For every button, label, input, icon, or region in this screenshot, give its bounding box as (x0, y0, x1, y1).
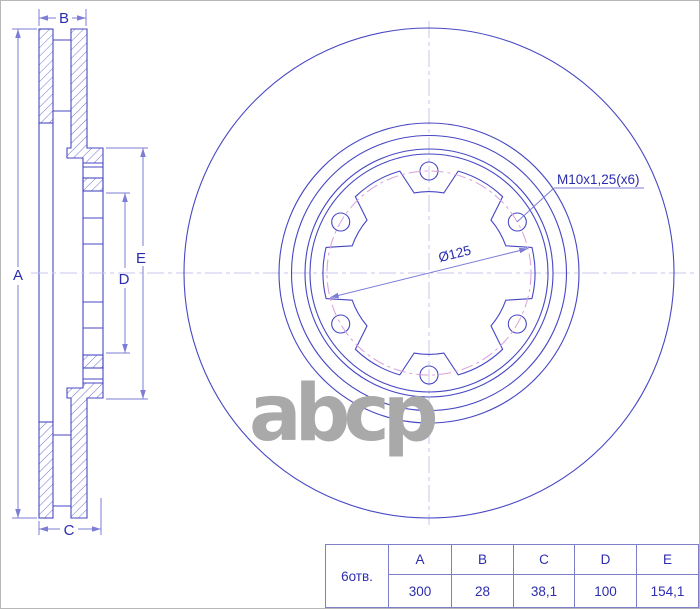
dim-label-b: B (59, 10, 69, 27)
dim-label-e: E (136, 250, 146, 267)
bolt-boss-section-bottom (83, 355, 103, 368)
table-value-e: 154,1 (636, 575, 698, 607)
friction-plate-inboard-top (67, 29, 103, 163)
table-value-b: 28 (451, 575, 513, 607)
bolt-circle-label-group: Ø125 (437, 243, 473, 265)
table-value-a: 300 (388, 575, 451, 607)
bolt-circle-diameter-label: Ø125 (437, 243, 473, 265)
dimension-table: 6отв. A B C D E 300 28 38,1 100 154,1 (325, 544, 699, 608)
table-header-c: C (513, 545, 574, 575)
brake-disc-drawing: A B C D E Ø125 M10x1,25(x6) (1, 1, 699, 608)
watermark-logo: abcp (249, 375, 432, 453)
dim-label-c: C (64, 522, 75, 539)
bolt-boss-section-top (83, 178, 103, 191)
dim-label-d: D (119, 271, 130, 288)
friction-plate-inboard-bottom (67, 383, 103, 518)
friction-plate-outboard-top (39, 29, 53, 123)
dim-label-a: A (13, 267, 23, 284)
table-header-e: E (636, 545, 698, 575)
bolt-hole (332, 315, 350, 333)
thread-callout-label: M10x1,25(x6) (557, 172, 640, 187)
thread-callout-leader (517, 188, 644, 222)
table-value-d: 100 (574, 575, 636, 607)
technical-drawing-canvas: A B C D E Ø125 M10x1,25(x6) abcp 6отв. A… (0, 0, 700, 609)
table-header-d: D (574, 545, 636, 575)
table-value-c: 38,1 (513, 575, 574, 607)
table-header-a: A (388, 545, 451, 575)
table-header-b: B (451, 545, 513, 575)
friction-plate-outboard-bottom (39, 422, 53, 518)
holes-count-cell: 6отв. (326, 545, 388, 607)
